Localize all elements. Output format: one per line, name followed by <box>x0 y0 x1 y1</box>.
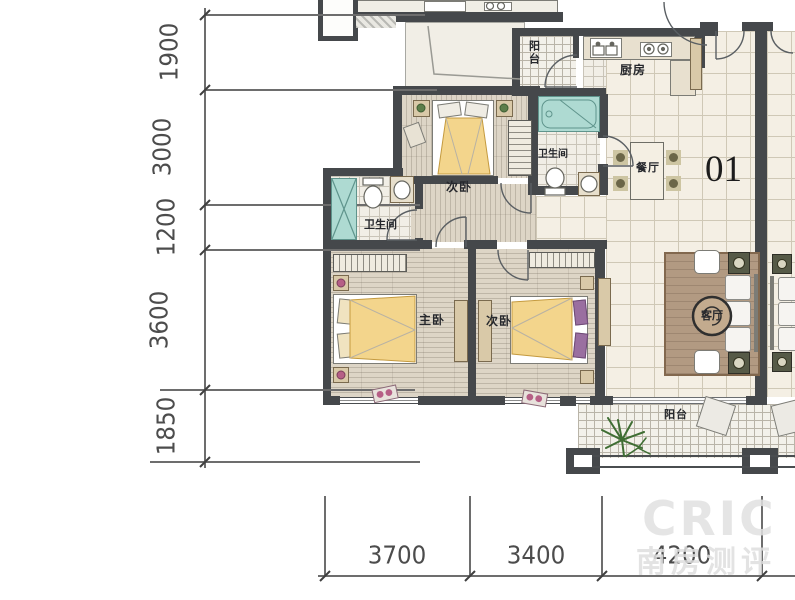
wall <box>468 249 476 396</box>
pillow <box>337 298 354 324</box>
wall <box>393 86 402 181</box>
sink-counter <box>390 176 414 203</box>
sofa-icon <box>770 276 795 350</box>
pillow <box>573 299 589 325</box>
wall <box>560 396 576 406</box>
label-master: 主卧 <box>419 314 445 327</box>
neighbor-balcony-box <box>318 0 358 41</box>
label-balcony-top: 阳台 <box>528 40 540 66</box>
wall <box>590 396 613 405</box>
side-table <box>772 254 792 274</box>
unit-number: 01 <box>705 148 742 191</box>
wall <box>573 36 579 58</box>
wall <box>418 396 505 405</box>
wardrobe-icon <box>529 252 595 268</box>
pillow <box>464 101 489 118</box>
extension-line <box>469 496 471 576</box>
dim-value: 3600 <box>146 291 174 350</box>
hall-floor <box>536 196 608 242</box>
entry-cabinet <box>690 38 702 90</box>
label-bedroom-bottom: 次卧 <box>486 315 512 328</box>
wall <box>323 168 403 176</box>
watermark-cn: 南房测评 <box>636 537 776 581</box>
wall <box>746 396 767 405</box>
dining-chair <box>613 176 628 191</box>
wall <box>393 86 540 95</box>
sofa-icon <box>724 274 758 352</box>
dim-value: 3400 <box>507 542 566 570</box>
label-dining: 餐厅 <box>636 162 660 174</box>
neighbor-top-room-floor <box>405 22 525 88</box>
label-living: 客厅 <box>701 310 723 322</box>
extension-line <box>205 249 420 251</box>
side-table <box>728 352 750 374</box>
nightstand <box>333 367 349 383</box>
label-bath-right: 卫生间 <box>538 150 568 161</box>
nightstand <box>496 100 513 117</box>
stove-icon <box>640 42 672 57</box>
dresser <box>454 300 468 362</box>
wall <box>464 240 497 249</box>
dining-chair <box>666 150 681 165</box>
side-table <box>772 352 792 372</box>
sink-counter <box>578 172 600 196</box>
wall <box>512 28 712 36</box>
nightstand <box>333 275 349 291</box>
wardrobe-icon <box>333 254 407 272</box>
label-bedroom-top: 次卧 <box>446 181 472 194</box>
extension-line <box>160 389 415 391</box>
side-table <box>728 252 750 274</box>
master-window <box>340 397 418 404</box>
dining-chair <box>613 150 628 165</box>
pillow <box>573 332 589 358</box>
dim-value: 3000 <box>149 118 177 177</box>
floorplan-page: 阳台 厨房 餐厅 卫生间 卫生间 次卧 主卧 次卧 客厅 阳台 01 1900 … <box>0 0 795 600</box>
shower-icon <box>331 178 357 240</box>
label-bath-left: 卫生间 <box>364 219 397 231</box>
extension-line <box>601 496 603 576</box>
label-balcony-bottom: 阳台 <box>664 409 688 421</box>
dim-value: 3700 <box>368 542 427 570</box>
balcony-column-core <box>750 455 770 467</box>
corridor-floor <box>411 184 536 242</box>
extension-line <box>205 204 420 206</box>
dim-value: 1200 <box>153 198 181 257</box>
armchair-icon <box>694 350 720 374</box>
dimension-line <box>204 8 206 468</box>
nightstand <box>580 276 594 290</box>
dining-chair <box>666 176 681 191</box>
neighbor-sink-icon <box>424 1 466 12</box>
extension-line <box>324 496 326 576</box>
neighbor-hatch <box>356 14 396 28</box>
extension-line <box>205 14 425 16</box>
extension-line <box>150 461 420 463</box>
wall <box>527 240 607 249</box>
label-kitchen: 厨房 <box>620 64 646 77</box>
wall <box>512 28 520 94</box>
kitchen-sink-icon <box>590 38 622 58</box>
dresser <box>478 300 492 362</box>
bedroom-bottom-window <box>505 397 590 404</box>
wall <box>323 396 340 405</box>
wall <box>323 240 432 249</box>
extension-line <box>205 89 437 91</box>
nightstand <box>413 100 430 117</box>
wardrobe-icon <box>508 120 532 176</box>
armchair-icon <box>694 250 720 274</box>
tv-cabinet <box>598 278 611 346</box>
dim-value: 1850 <box>153 397 181 456</box>
bathtub-icon <box>538 96 600 132</box>
balcony-column-core <box>574 455 592 467</box>
dim-value: 1900 <box>156 23 184 82</box>
pillow <box>337 332 354 358</box>
neighbor-stove-icon <box>484 2 512 11</box>
nightstand <box>580 370 594 384</box>
